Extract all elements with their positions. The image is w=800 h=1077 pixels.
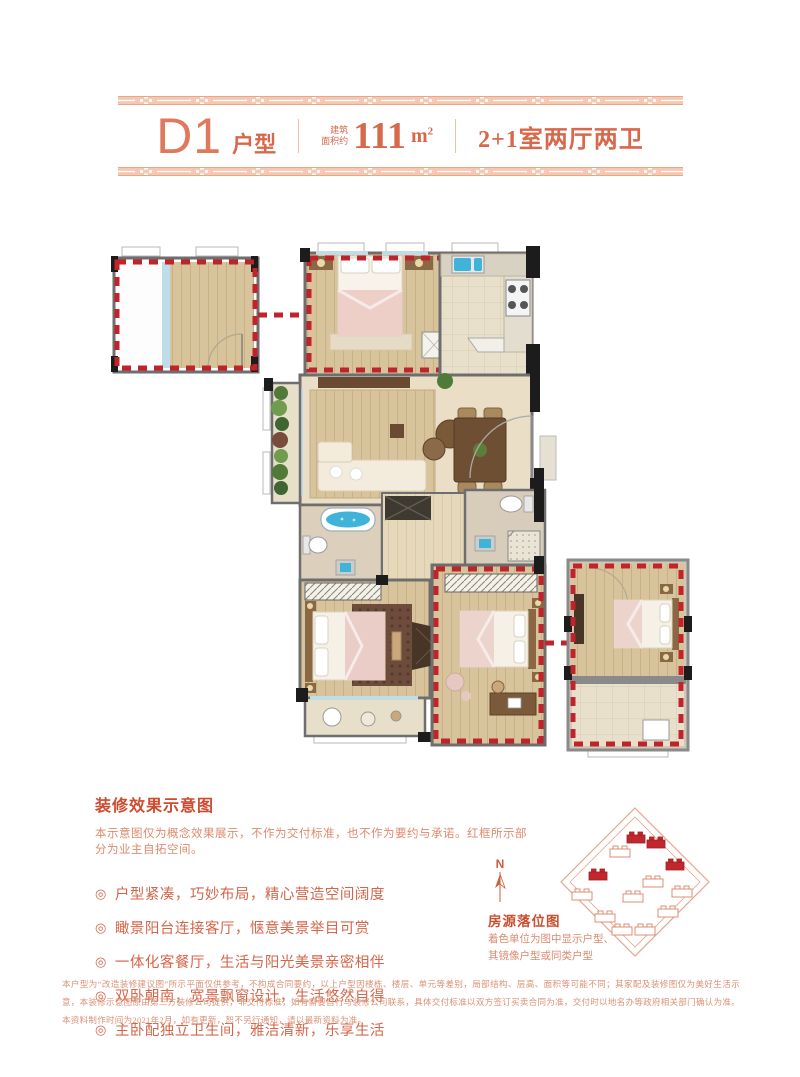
- sitemap-title: 房源落位图: [488, 910, 561, 930]
- brochure-page: D1 户型 建筑 面积约 111 m2 2+1室两厅两卫: [0, 0, 800, 1077]
- decorative-band-bottom: [118, 167, 683, 176]
- top-left-expansion-box: [111, 256, 258, 372]
- list-item: ◎一体化客餐厅，生活与阳光美景亲密相伴: [95, 951, 535, 972]
- area-unit: m2: [411, 125, 433, 148]
- list-item: ◎户型紧凑，巧妙布局，精心营造空间阔度: [95, 883, 535, 904]
- area-value: 111: [353, 117, 406, 155]
- compass-north-icon: [490, 870, 510, 904]
- decorative-band-top: [118, 96, 683, 105]
- area-label: 建筑 面积约: [321, 125, 348, 148]
- kitchen: [440, 246, 540, 376]
- disclaimer-text: 本户型为“改造装修建议图”所示平面仅供参考，不构成合同要约，以上户型因楼栋、楼层…: [62, 976, 740, 1030]
- divider: [455, 119, 456, 153]
- notes-heading: 装修效果示意图: [95, 792, 535, 816]
- notes-subheading: 本示意图仅为概念效果展示，不作为交付标准，也不作为要约与承诺。红框所示部分为业主…: [95, 825, 535, 857]
- floor-plan: [100, 238, 700, 768]
- master-bedroom: [300, 580, 430, 698]
- bullet-icon: ◎: [95, 920, 107, 936]
- layout-description: 2+1室两厅两卫: [478, 119, 644, 154]
- list-item: ◎瞰景阳台连接客厅，惬意美景举目可赏: [95, 917, 535, 938]
- living-dining-area: [298, 368, 556, 508]
- balcony-left: [271, 383, 300, 503]
- divider: [298, 119, 299, 153]
- master-bathroom: [300, 505, 382, 580]
- compass-north-label: N: [489, 858, 511, 870]
- bottom-right-expansion-box: [564, 560, 692, 750]
- unit-suffix: 户型: [232, 127, 276, 159]
- compass: N: [489, 858, 511, 909]
- balcony-bottom: [296, 688, 436, 742]
- unit-code: D1: [156, 111, 222, 161]
- bullet-icon: ◎: [95, 954, 107, 970]
- site-buildings: [572, 846, 692, 935]
- area-group: 建筑 面积约 111 m2: [321, 117, 433, 155]
- header: D1 户型 建筑 面积约 111 m2 2+1室两厅两卫: [0, 96, 800, 176]
- second-bedroom: [432, 565, 545, 745]
- sitemap-caption: 着色单位为图中显示户型、 其镜像户型或同类户型: [488, 931, 614, 965]
- north-bedroom: [305, 251, 446, 375]
- bullet-icon: ◎: [95, 886, 107, 902]
- title-row: D1 户型 建筑 面积约 111 m2 2+1室两厅两卫: [0, 105, 800, 167]
